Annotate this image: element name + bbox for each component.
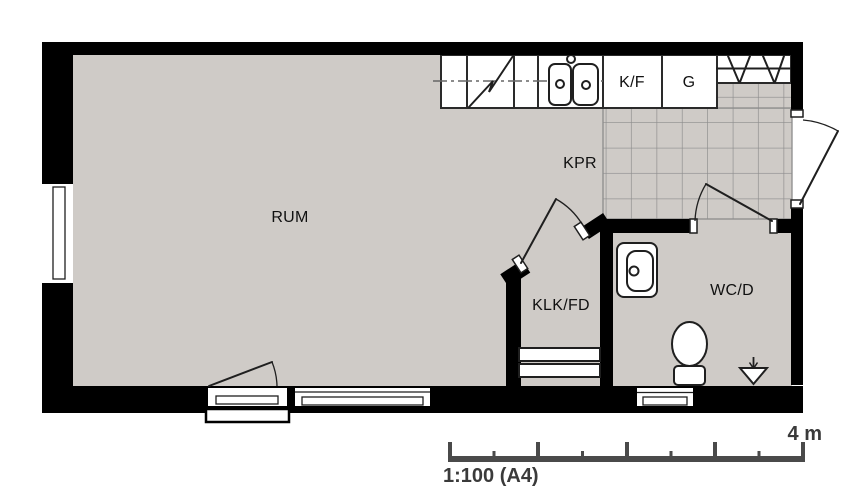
wall-top xyxy=(42,42,803,55)
floor-plan-drawing: K/F G xyxy=(0,0,847,503)
window-bottom-rum-icon xyxy=(295,388,430,406)
wall-kpr-wc-right xyxy=(777,219,803,233)
wardrobe-label: G xyxy=(683,74,696,91)
room-label-klk-fd: KLK/FD xyxy=(532,297,590,314)
door-leaf xyxy=(800,131,838,204)
scale-bar: 4 m 1:100 (A4) xyxy=(443,423,822,487)
door-swing-arc xyxy=(803,120,838,131)
wall-right-lower xyxy=(791,208,803,385)
washbasin-icon xyxy=(617,243,657,297)
threshold-step xyxy=(206,409,289,422)
room-label-kpr: KPR xyxy=(563,155,597,172)
door-jamb xyxy=(791,110,803,117)
window-bottom-wc-icon xyxy=(637,388,693,406)
wall-kpr-wc-left xyxy=(600,219,690,233)
window-left-icon xyxy=(43,184,73,283)
toilet-icon xyxy=(672,322,707,385)
wall-right-upper xyxy=(791,42,803,110)
coat-rack-icon xyxy=(717,55,791,83)
floor-plan: K/F G xyxy=(0,0,847,503)
entrance-door xyxy=(791,110,838,208)
scale-length-label: 4 m xyxy=(788,423,822,445)
fridge-freezer-label: K/F xyxy=(619,74,645,91)
wall-klk-wc xyxy=(600,219,613,386)
door-jamb xyxy=(690,219,697,233)
room-label-wc-d: WC/D xyxy=(710,282,754,299)
room-label-rum: RUM xyxy=(271,209,308,226)
scale-ratio-label: 1:100 (A4) xyxy=(443,465,539,487)
wall-left-upper xyxy=(42,42,73,184)
